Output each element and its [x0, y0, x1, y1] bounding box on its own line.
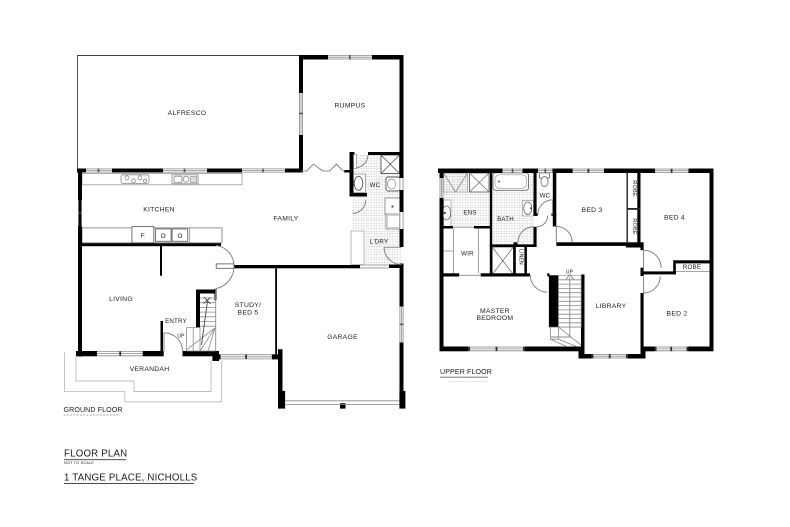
svg-text:FLOOR PLAN: FLOOR PLAN — [64, 449, 127, 460]
svg-text:KITCHEN: KITCHEN — [143, 207, 175, 214]
svg-text:STUDY/: STUDY/ — [235, 302, 261, 309]
svg-text:F: F — [141, 233, 145, 240]
svg-text:ALFRESCO: ALFRESCO — [168, 110, 207, 117]
svg-text:WC: WC — [370, 182, 381, 189]
svg-text:O: O — [161, 233, 166, 240]
svg-text:UP: UP — [566, 270, 574, 276]
svg-text:BATH: BATH — [497, 216, 514, 223]
svg-text:BEDROOM: BEDROOM — [476, 315, 513, 322]
svg-text:VERANDAH: VERANDAH — [130, 366, 170, 373]
svg-text:ROBE: ROBE — [631, 180, 637, 197]
svg-text:O: O — [177, 233, 182, 240]
svg-text:1 TANGE PLACE, NICHOLLS: 1 TANGE PLACE, NICHOLLS — [64, 473, 198, 484]
svg-text:ENTRY: ENTRY — [165, 318, 187, 325]
svg-text:LIBRARY: LIBRARY — [596, 303, 627, 310]
svg-text:BED 4: BED 4 — [664, 215, 685, 222]
svg-text:UPPER FLOOR: UPPER FLOOR — [440, 368, 492, 376]
svg-text:NOT TO SCALE: NOT TO SCALE — [64, 461, 94, 465]
svg-text:BED 3: BED 3 — [582, 207, 603, 214]
svg-text:BED 2: BED 2 — [667, 311, 688, 318]
svg-text:UP: UP — [177, 334, 185, 340]
svg-text:LINEN: LINEN — [518, 249, 524, 265]
svg-text:GROUND FLOOR: GROUND FLOOR — [64, 406, 123, 414]
svg-text:ROBE: ROBE — [631, 218, 637, 235]
svg-text:FAMILY: FAMILY — [273, 216, 298, 223]
svg-text:WC: WC — [540, 193, 551, 200]
svg-text:ROBE: ROBE — [683, 264, 701, 271]
svg-text:L'DRY: L'DRY — [370, 239, 389, 246]
svg-text:LIVING: LIVING — [109, 296, 133, 303]
svg-text:WIR: WIR — [461, 251, 474, 258]
svg-text:GARAGE: GARAGE — [327, 334, 358, 341]
svg-text:RUMPUS: RUMPUS — [335, 103, 366, 110]
svg-text:ENS: ENS — [463, 210, 476, 217]
svg-text:BED 5: BED 5 — [238, 310, 259, 317]
